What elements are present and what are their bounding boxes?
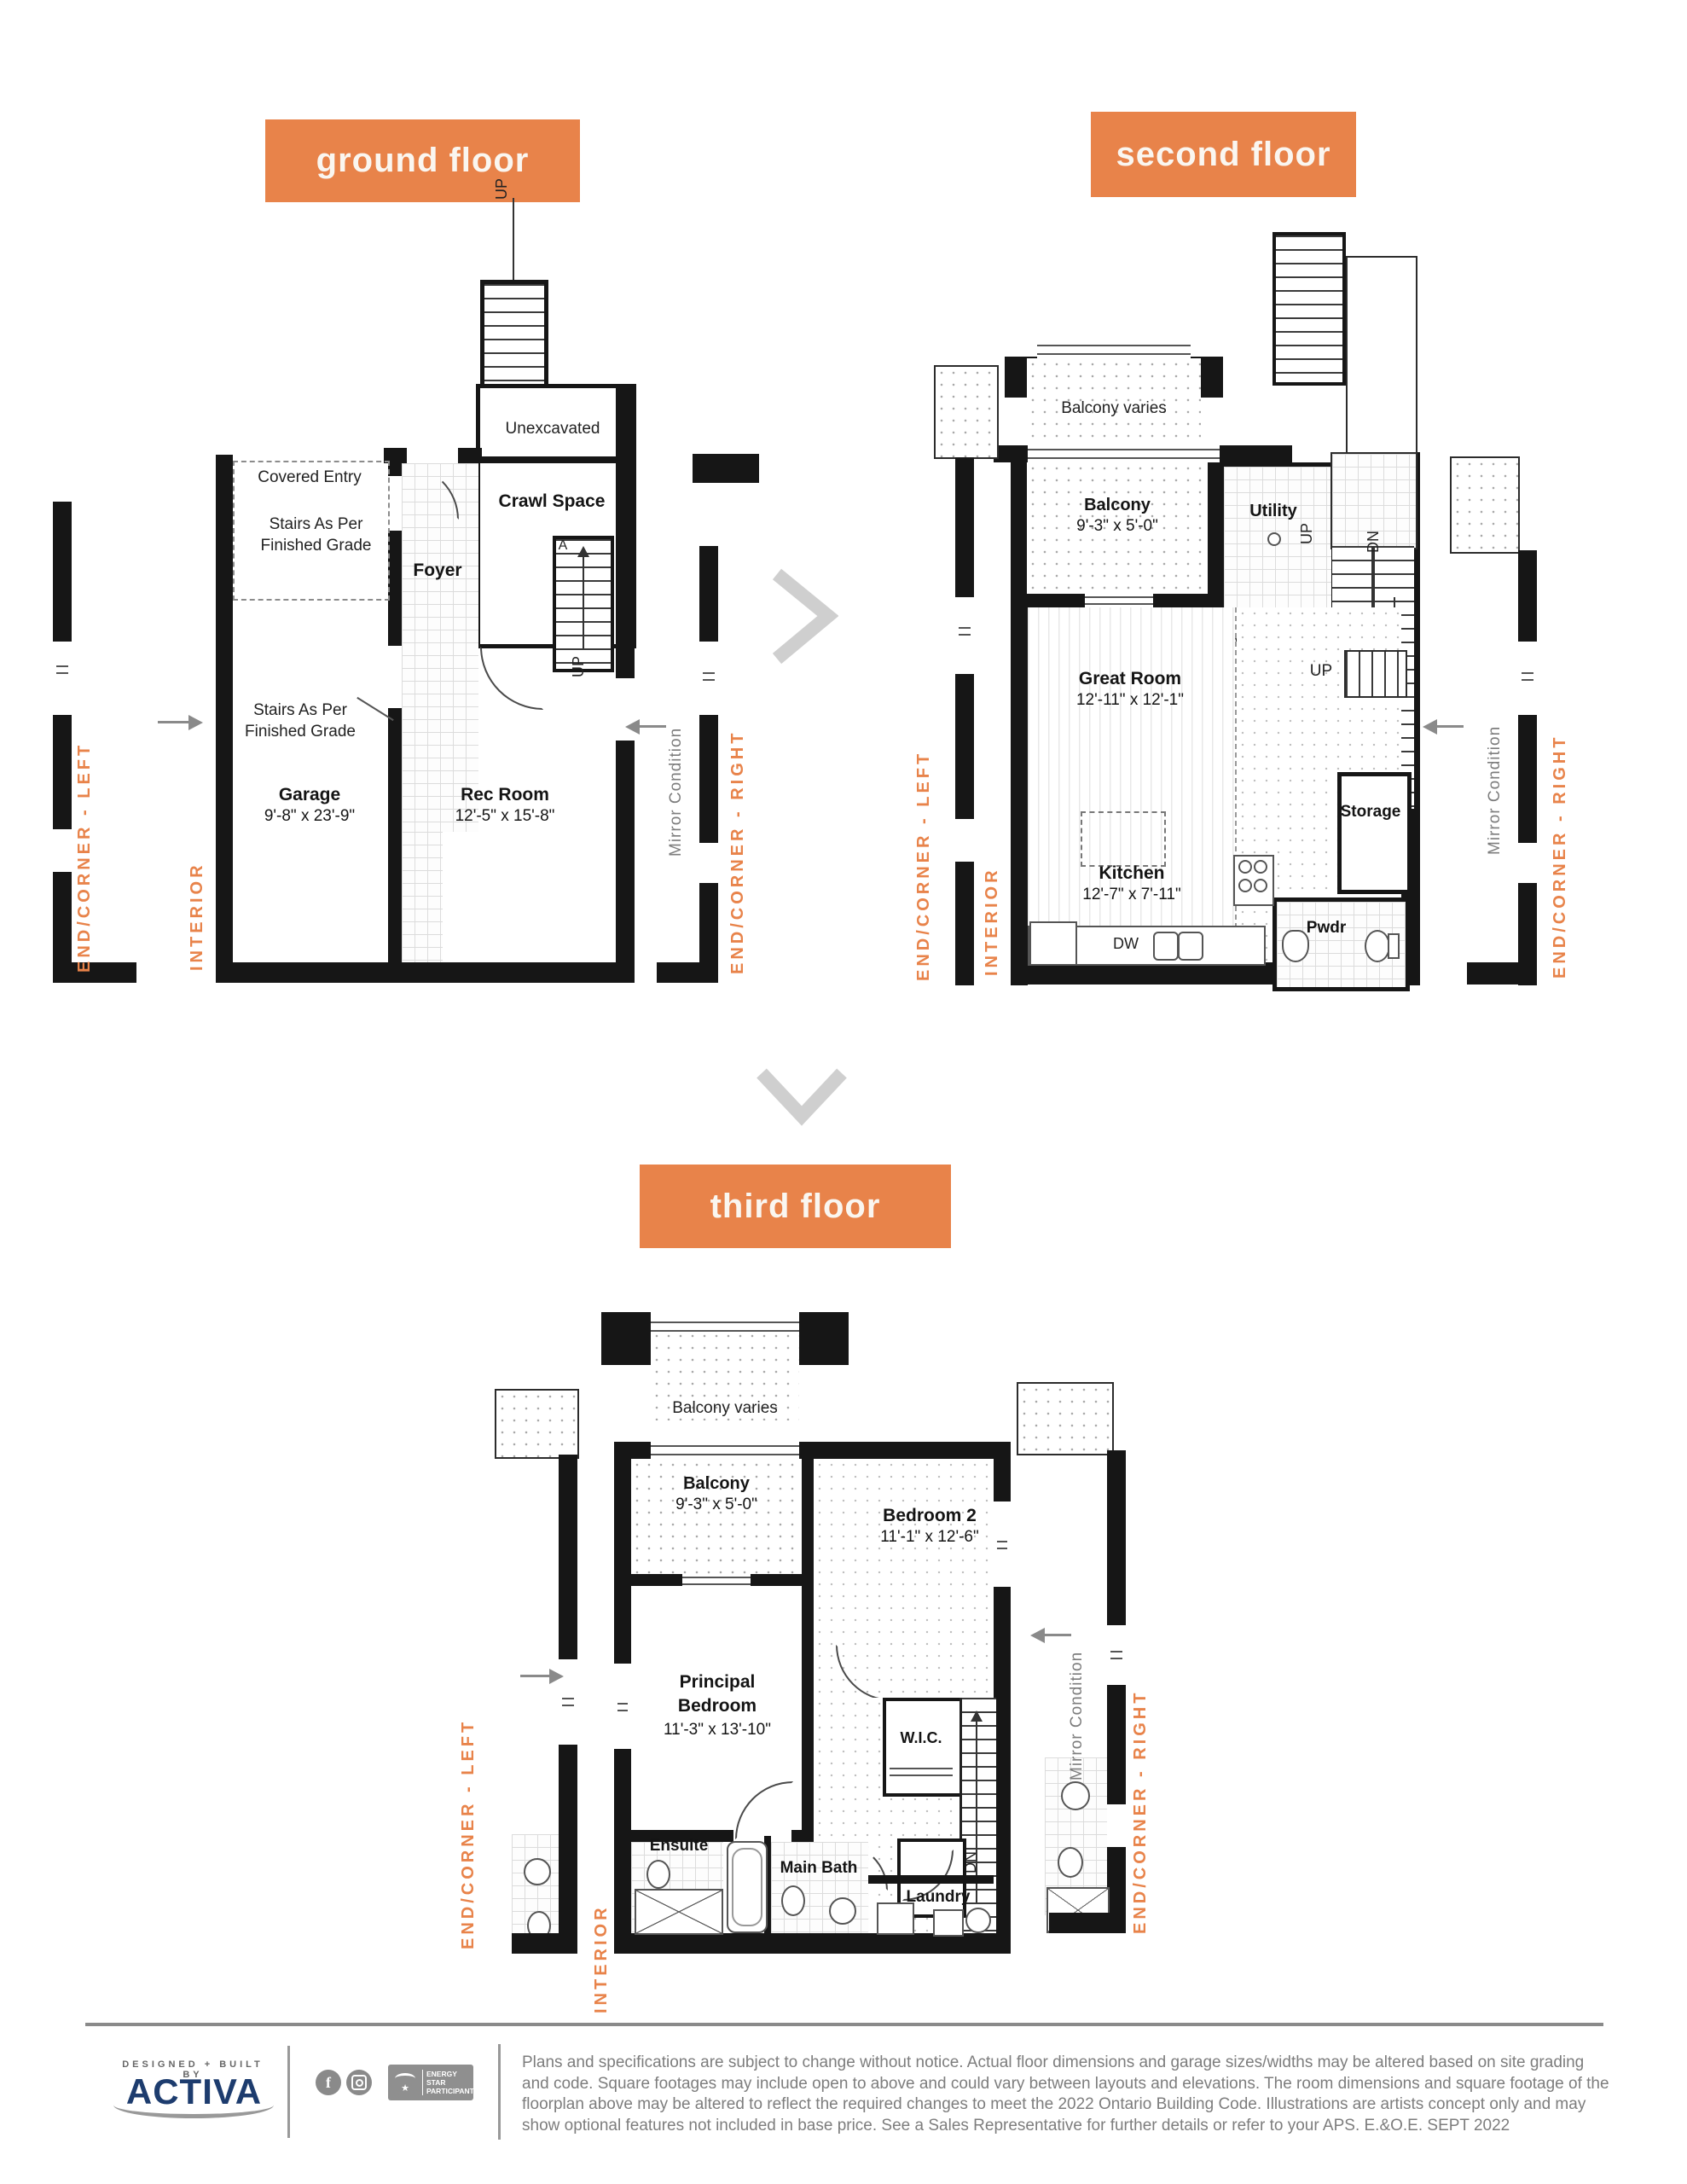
wall (216, 962, 635, 983)
door-arc (735, 1781, 793, 1839)
tub-icon (732, 1848, 762, 1926)
balcony-dims: 9'-3" x 5'-0" (1027, 518, 1208, 536)
up-label: UP (493, 160, 515, 200)
wall (751, 1574, 814, 1586)
energy-star-badge: ★ ENERGY STAR PARTICIPANT (388, 2065, 473, 2100)
activa-logo-swoosh (113, 2092, 274, 2118)
closet-rod-icon (890, 1768, 953, 1776)
stair-arrow-up-icon (577, 546, 589, 557)
principal-dims: 11'-3" x 13'-10" (632, 1722, 803, 1740)
arrow-line (520, 1675, 551, 1677)
footer-separator (498, 2044, 501, 2140)
sink-icon (1153, 932, 1179, 961)
dishwasher-label: DW (1100, 935, 1151, 954)
wic-room (883, 1698, 966, 1797)
balcony-varies-label: Balcony varies (651, 1399, 799, 1419)
laundry-sink-icon (965, 1908, 991, 1933)
window-icon (703, 672, 715, 681)
toilet-icon (781, 1885, 805, 1916)
window-icon (959, 627, 971, 636)
storage-room (1337, 772, 1412, 894)
wall (802, 1459, 814, 1838)
window-icon (1110, 1651, 1122, 1659)
mirror-condition-label: Mirror Condition (667, 718, 689, 857)
wall (994, 1442, 1011, 1501)
end-corner-left-label: END/CORNER - LEFT (459, 1651, 481, 1949)
wall (388, 448, 402, 476)
washer-icon (877, 1902, 914, 1935)
footer-separator (287, 2046, 290, 2138)
mirror-balcony-area (1017, 1382, 1114, 1455)
fridge-icon (1029, 921, 1077, 966)
arrow-line (1436, 725, 1464, 728)
end-corner-left-label: END/CORNER - LEFT (75, 674, 97, 973)
balcony-varies-label: Balcony varies (1027, 399, 1201, 419)
covered-entry-label: Covered Entry (233, 468, 386, 488)
sink-icon (1282, 930, 1309, 962)
stair-arrow-up-icon (971, 1711, 983, 1722)
up-label: UP (1300, 662, 1342, 682)
wall (693, 454, 759, 483)
up-label: UP (570, 642, 592, 677)
door-arc (480, 647, 543, 710)
stairs-note-1a: Stairs As Per (233, 515, 399, 535)
wall (458, 448, 482, 463)
mirror-balcony-area (934, 365, 999, 459)
toilet-icon (1058, 1847, 1083, 1878)
second-floor-title: second floor (1091, 112, 1356, 197)
wall (1208, 462, 1220, 607)
window-icon (56, 665, 68, 674)
principal-label-1: Principal (632, 1672, 803, 1692)
sink-icon (829, 1897, 856, 1925)
right-arrow-icon (188, 715, 203, 730)
bedroom2-label: Bedroom 2 (844, 1506, 1015, 1525)
wall (1467, 962, 1537, 985)
wall (955, 862, 974, 985)
wall (1015, 594, 1085, 607)
burner-icon (1254, 860, 1267, 874)
wall (1518, 550, 1537, 642)
toilet-icon (1388, 933, 1400, 959)
garage-label: Garage (224, 785, 395, 804)
instagram-glyph (351, 2075, 367, 2090)
window-icon (1019, 449, 1220, 459)
balcony-label: Balcony (1027, 496, 1208, 514)
kitchen-dims: 12'-7" x 7'-11" (1055, 886, 1209, 904)
wall (559, 1745, 577, 1954)
burner-icon (1254, 879, 1267, 892)
wall (955, 674, 974, 819)
wall (601, 1312, 651, 1365)
stair-landing (1346, 256, 1417, 474)
sink-icon (1178, 932, 1203, 961)
utility-drain-icon (1267, 532, 1281, 546)
energy-star-logo-icon: ★ (388, 2073, 422, 2093)
balcony-dims: 9'-3" x 5'-0" (631, 1496, 802, 1514)
floorplan-sheet: ground floor UP Unexcavated Crawl Space … (0, 0, 1687, 2184)
railing-icon (1037, 345, 1191, 355)
down-floor-chevron-icon (755, 1066, 849, 1126)
stair-section-mark: A (553, 537, 573, 554)
disclaimer-text: Plans and specifications are subject to … (522, 2053, 1615, 2136)
foyer-label: Foyer (395, 561, 480, 580)
instagram-icon[interactable] (346, 2070, 372, 2095)
wall (791, 1830, 814, 1842)
wall (1518, 715, 1537, 843)
end-corner-right-label: END/CORNER - RIGHT (728, 674, 751, 974)
toilet-icon (646, 1860, 670, 1889)
wall (799, 1442, 1011, 1459)
energy-star-star: ★ (388, 2084, 422, 2093)
footer-divider (85, 2023, 1603, 2026)
crawl-space-label: Crawl Space (476, 491, 628, 511)
wall (1015, 462, 1027, 607)
stairs-note-1b: Finished Grade (233, 537, 399, 556)
foyer-floor (402, 832, 443, 962)
mirror-condition-label: Mirror Condition (1486, 717, 1508, 855)
great-room-floor (1028, 607, 1235, 962)
stair-tower (1272, 232, 1346, 386)
sink-icon (1061, 1781, 1090, 1810)
facebook-icon[interactable]: f (316, 2070, 341, 2095)
wall (1107, 1450, 1126, 1625)
rec-room-label: Rec Room (420, 785, 590, 804)
wall (631, 1574, 682, 1586)
end-corner-right-label: END/CORNER - RIGHT (1551, 678, 1573, 979)
instagram-lens (356, 2079, 363, 2087)
end-corner-right-label: END/CORNER - RIGHT (1131, 1634, 1153, 1934)
wall (699, 715, 718, 843)
burner-icon (1238, 879, 1252, 892)
left-arrow-icon (1423, 719, 1437, 735)
kitchen-label: Kitchen (1055, 863, 1209, 883)
wall (955, 457, 974, 597)
mirror-condition-label: Mirror Condition (1068, 1642, 1090, 1780)
wall (868, 1875, 994, 1884)
window-icon (651, 1445, 799, 1455)
stair-arrow-line (583, 553, 584, 648)
interior-label: INTERIOR (983, 860, 1005, 976)
mirror-balcony-area (495, 1389, 579, 1459)
arrow-line (639, 725, 666, 728)
dryer-icon (933, 1909, 964, 1937)
window-icon (562, 1698, 574, 1706)
principal-label-2: Bedroom (632, 1696, 803, 1716)
wall (799, 1312, 849, 1365)
wall (994, 1587, 1011, 1954)
unexcavated-label: Unexcavated (484, 420, 621, 439)
third-floor-title: third floor (640, 1165, 951, 1248)
stair-tower (480, 280, 548, 394)
next-floor-chevron-icon (770, 567, 838, 665)
half-landing-stair (1344, 650, 1407, 698)
burner-icon (1238, 860, 1252, 874)
bedroom2-dims: 11'-1" x 12'-6" (844, 1529, 1015, 1547)
mirror-balcony-area (1450, 456, 1520, 554)
arrow-line (158, 721, 190, 723)
garage-dims: 9'-8" x 23'-9" (224, 808, 395, 826)
window-icon (617, 1703, 628, 1711)
wic-label: W.I.C. (883, 1730, 959, 1747)
wall (1049, 1913, 1126, 1933)
ensuite-label: Ensuite (631, 1838, 727, 1856)
wall (1220, 445, 1292, 462)
wall (657, 962, 718, 983)
wall (616, 741, 635, 983)
energy-star-arc (395, 2073, 415, 2084)
wall (614, 1749, 631, 1954)
wall (699, 546, 718, 642)
slider-door-icon (682, 1577, 751, 1585)
interior-label: INTERIOR (592, 1894, 614, 2013)
wall (53, 502, 72, 642)
wall (616, 384, 635, 678)
railing-icon (651, 1321, 799, 1332)
up-label: UP (1298, 505, 1320, 544)
left-arrow-icon (1030, 1628, 1045, 1643)
stairs-note-2a: Stairs As Per (215, 701, 386, 721)
end-corner-left-label: END/CORNER - LEFT (914, 682, 936, 981)
wall (1107, 1685, 1126, 1804)
shower-icon (635, 1889, 723, 1935)
wall (388, 708, 402, 962)
wall (614, 1442, 631, 1664)
wall (559, 1455, 577, 1659)
slider-door-icon (1085, 596, 1153, 605)
great-room-label: Great Room (1045, 669, 1215, 688)
wall (53, 715, 72, 829)
ground-floor-title: ground floor (265, 119, 580, 202)
kitchen-island-outline (1081, 811, 1166, 867)
window-icon (1522, 672, 1533, 681)
interior-label: INTERIOR (188, 855, 210, 971)
dn-label: DN (1365, 510, 1387, 553)
right-arrow-icon (549, 1669, 564, 1684)
balcony-label: Balcony (631, 1474, 802, 1493)
left-arrow-icon (625, 719, 640, 735)
wall (1153, 594, 1220, 607)
storage-label: Storage (1336, 804, 1406, 822)
arrow-line (1044, 1634, 1071, 1636)
sink-icon (524, 1858, 551, 1885)
wall (512, 1933, 577, 1954)
energy-star-text: ENERGY STAR PARTICIPANT (422, 2070, 472, 2095)
great-room-dims: 12'-11" x 12'-1" (1045, 692, 1215, 710)
toilet-icon (1365, 930, 1390, 962)
stairs-note-2b: Finished Grade (215, 723, 386, 742)
rec-room-dims: 12'-5" x 15'-8" (420, 808, 590, 826)
